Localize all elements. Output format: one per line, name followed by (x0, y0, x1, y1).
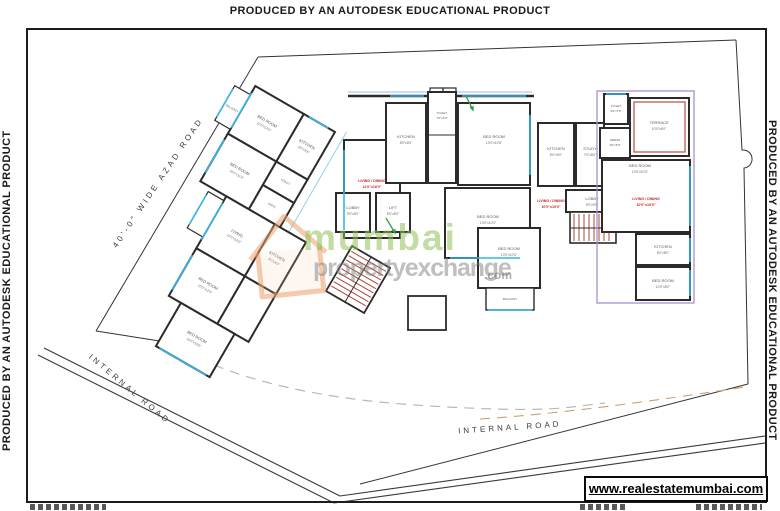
room-label: BALCONY (503, 297, 517, 301)
room-dims: 8'0"x8'0" (657, 251, 670, 255)
room-dims: 10'0"x8'0" (656, 285, 671, 289)
autodesk-banner-right: PRODUCED BY AN AUTODESK EDUCATIONAL PROD… (766, 100, 778, 460)
room-dims: 10'0"x10'0" (501, 253, 518, 257)
website-link[interactable]: www.realestatemumbai.com (589, 481, 763, 496)
internal-road-label-bottom: INTERNAL ROAD (458, 419, 562, 435)
room-label: TERRACE (649, 120, 668, 125)
room-dims: 10'0"x10'0" (480, 221, 497, 225)
cutoff-text-fragment (30, 504, 106, 510)
room-dims: 10'0"x10'6" (486, 141, 503, 145)
room-label: BED ROOM (483, 134, 505, 139)
room-dims: 10'0"x10'0" (632, 170, 649, 174)
autodesk-banner-top: PRODUCED BY AN AUTODESK EDUCATIONAL PROD… (0, 5, 780, 17)
floor-plan-page: { "edge_banner": { "top": "PRODUCED BY A… (0, 0, 780, 511)
room-label: TOILET (437, 111, 448, 115)
room-label: BED ROOM (652, 278, 674, 283)
room-label: KITCHEN (547, 146, 565, 151)
annotation-label: LIVING / DINING (537, 199, 565, 203)
annotation-dims: 10'0"x19'0" (636, 203, 655, 207)
room-label: BED ROOM (629, 163, 651, 168)
room-label: DRESS (610, 138, 620, 142)
room-dims: 8'0"x9'0" (550, 153, 563, 157)
dashed-setback-tan (480, 387, 745, 419)
room-dims: 7'0"x8'0" (584, 153, 597, 157)
internal-road-label-left: INTERNAL ROAD (87, 352, 172, 425)
room-label: KITCHEN (654, 244, 672, 249)
room-label: KITCHEN (397, 134, 415, 139)
room-label: LOBBY (346, 205, 360, 210)
room-label: BED ROOM (498, 246, 520, 251)
room-label: TOILET (611, 104, 622, 108)
dashed-setback-gray (168, 343, 605, 409)
room-dims: 9'0"x8'0" (347, 212, 360, 216)
staircase-left (326, 246, 390, 313)
autodesk-banner-left: PRODUCED BY AN AUTODESK EDUCATIONAL PROD… (1, 118, 13, 463)
room-label: STUDY (583, 146, 597, 151)
room-dims: 7'6"x4'0" (436, 116, 447, 120)
room-dims: 8'0"x8'0" (387, 212, 400, 216)
annotation-label: LIVING / DINING (632, 197, 660, 201)
cutoff-text-fragment (580, 504, 628, 510)
central-block: KITCHEN 8'0"x8'0" TOILET 7'6"x4'0" BED R… (336, 88, 618, 330)
cutoff-text-fragment (696, 504, 762, 510)
annotation-dims: 10'0"x19'0" (541, 205, 560, 209)
room-dims: 4'0"x6'0" (609, 143, 620, 147)
annotation-dims: 11'0"x18'0" (363, 185, 382, 189)
annotation-label: LIVING / DINING (358, 179, 386, 183)
room-dims: 8'0"x8'0" (400, 141, 413, 145)
site-plan-drawing: 40'-0" WIDE AZAD ROAD INTERNAL ROAD INTE… (0, 0, 780, 511)
room-dims: 4'0"x7'6" (610, 109, 621, 113)
room-label: BED ROOM (477, 214, 499, 219)
room-label: LIFT (389, 205, 398, 210)
room-dims: 10'0"x8'0" (652, 127, 667, 131)
website-link-box[interactable]: www.realestatemumbai.com (584, 476, 768, 502)
